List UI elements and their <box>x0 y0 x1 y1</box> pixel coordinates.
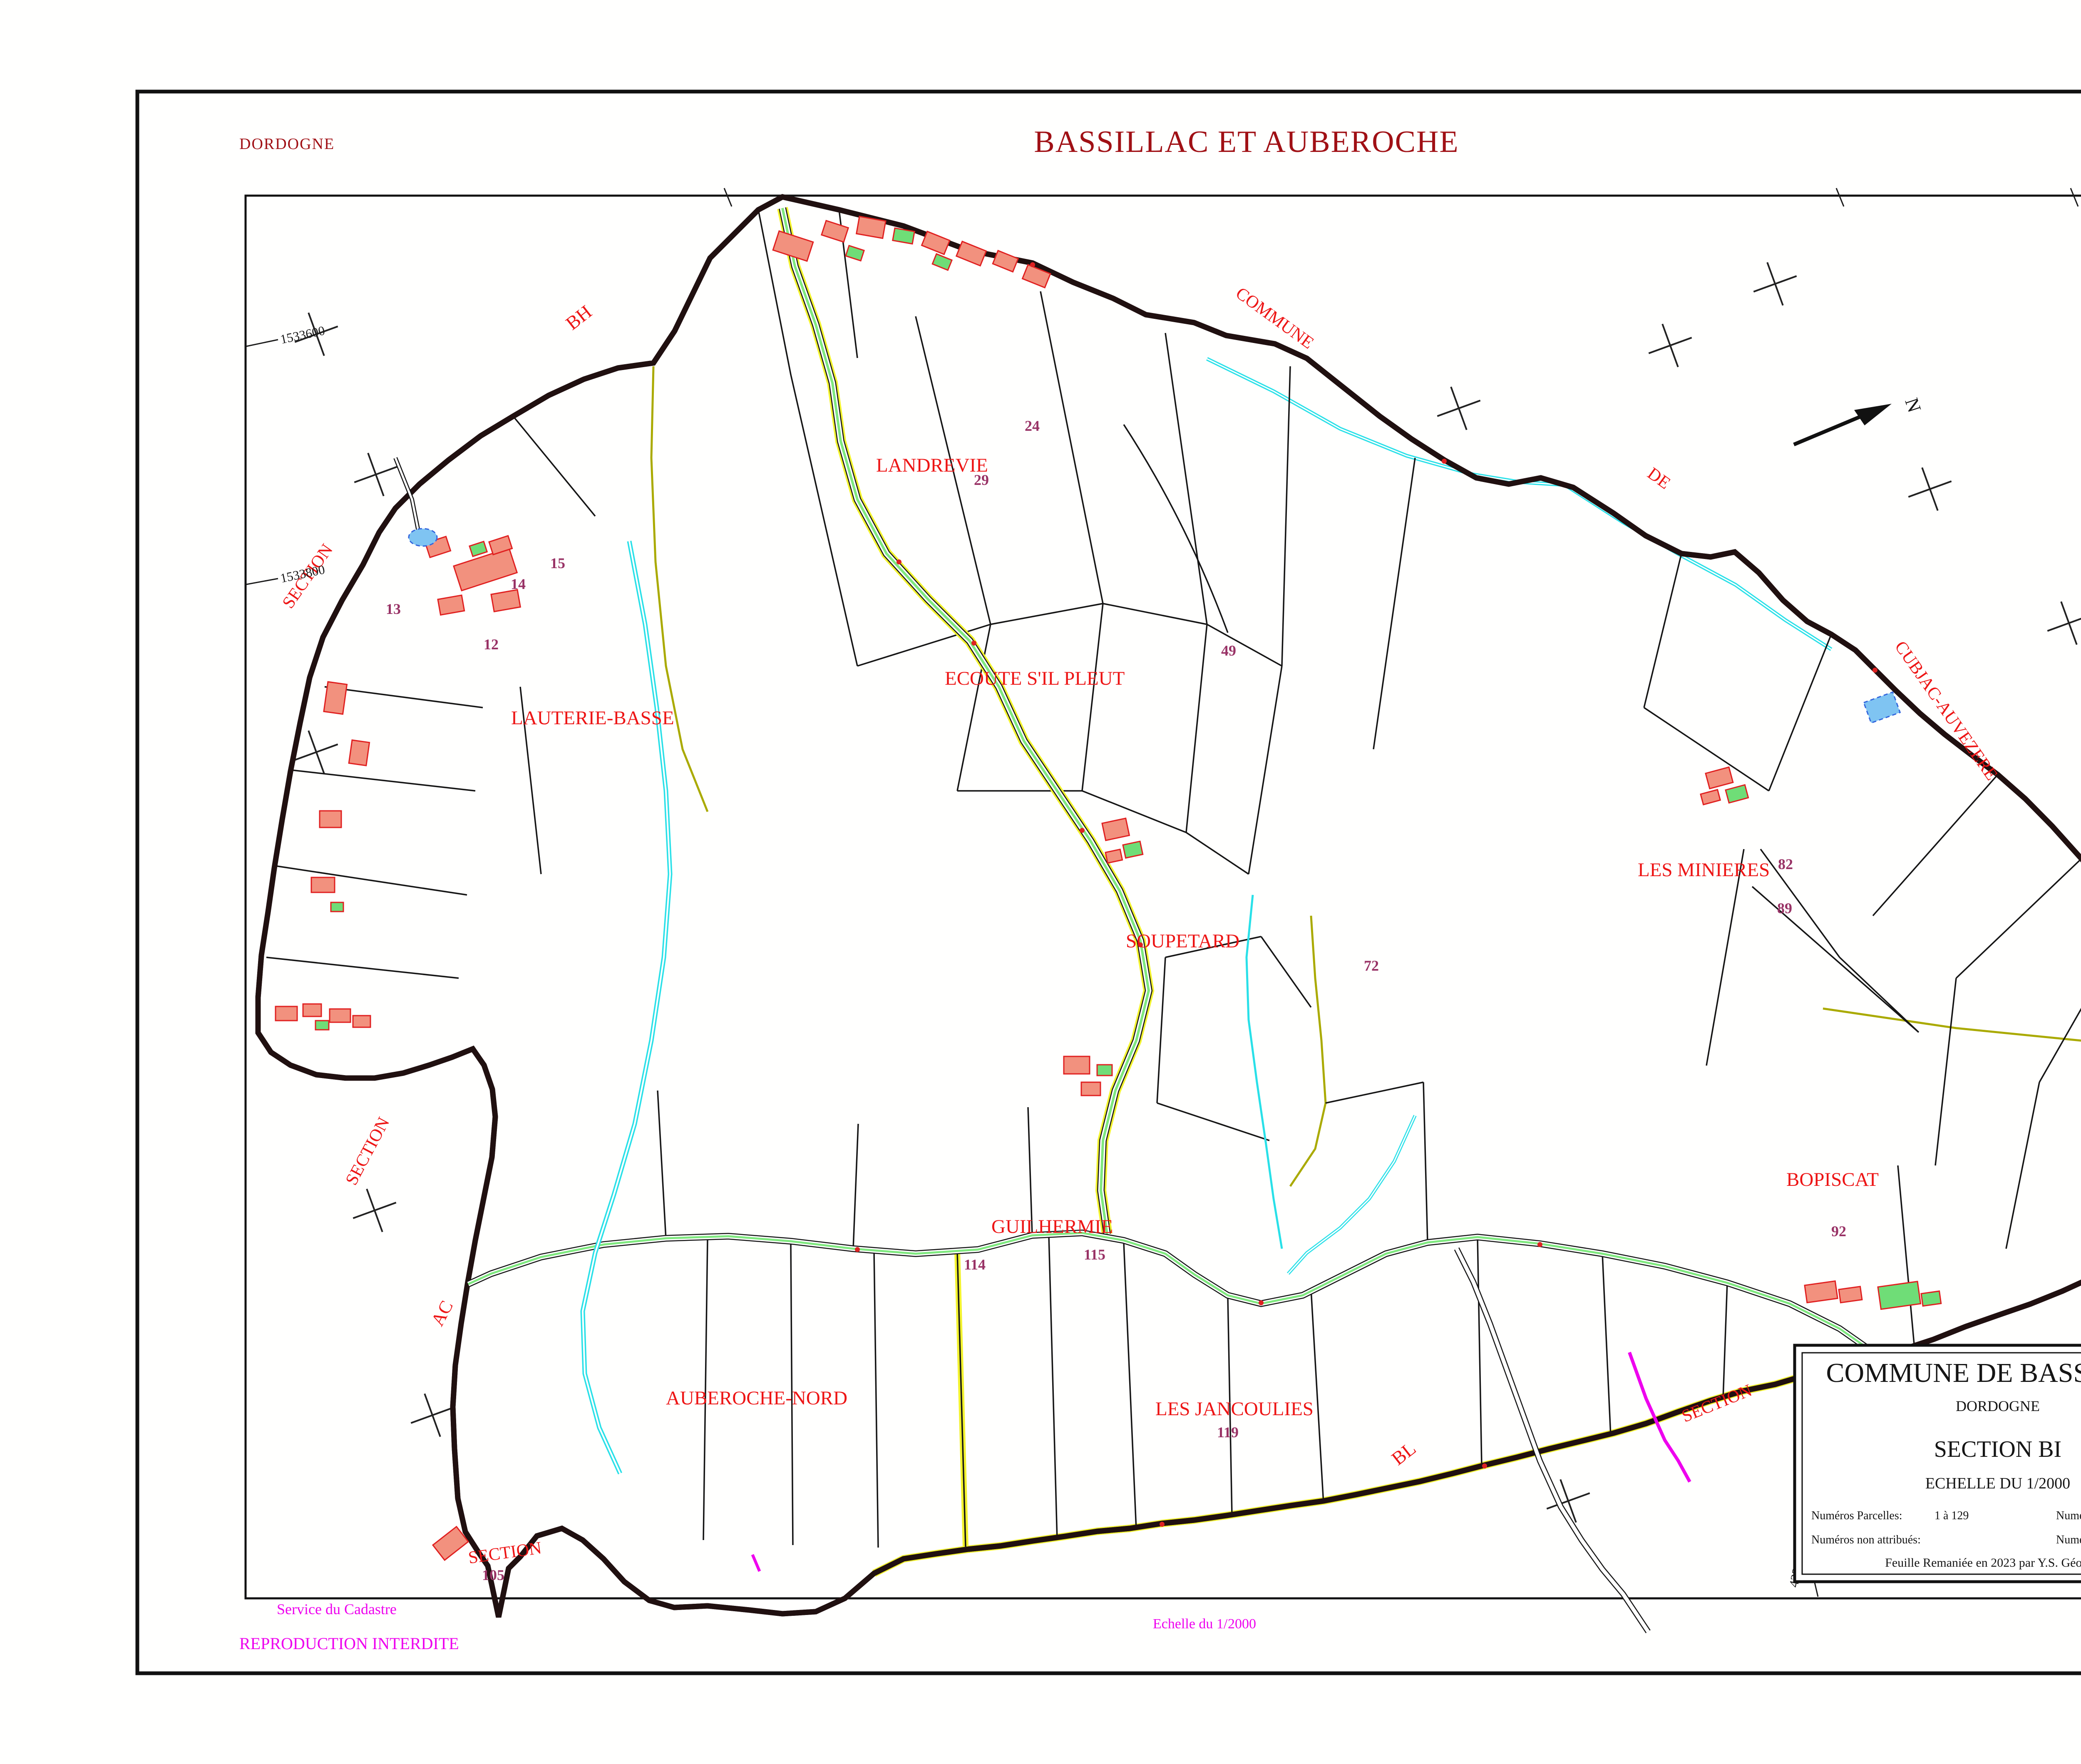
stream-northeast-gap <box>1207 359 1831 649</box>
road-guilhermie <box>468 1233 1881 1358</box>
label-section-bl: BL <box>1388 1438 1420 1469</box>
place-landrevie: LANDREVIE <box>876 455 988 476</box>
cartouche-unassigned-label: Numéros non attribués: <box>1811 1533 1921 1546</box>
road-southeast <box>1457 1249 1648 1632</box>
place-soupetard: SOUPETARD <box>1126 930 1239 952</box>
parcel-number: 92 <box>1831 1223 1846 1240</box>
magenta-lines <box>752 1352 1690 1571</box>
place-bopiscat: BOPISCAT <box>1786 1169 1879 1190</box>
cartouche-section: SECTION BI <box>1934 1436 2061 1462</box>
cadastral-sheet: DORDOGNE BASSILLAC ET AUBEROCHE SECTION … <box>0 0 2081 1764</box>
cartouche-note: Feuille Remaniée en 2023 par Y.S. Géomèt… <box>1885 1556 2081 1570</box>
label-cubjac-auvezere: CUBJAC-AUVEZERE <box>1891 638 2001 784</box>
place-guilhermie: GUILHERMIE <box>991 1216 1113 1237</box>
place-les-jancoulies: LES JANCOULIES <box>1155 1398 1314 1420</box>
cartouche-commune: COMMUNE DE BASSILLAC <box>1826 1358 2081 1388</box>
label-section-bh: BH <box>562 301 596 334</box>
edge-ticks-top <box>724 188 2078 206</box>
cartouche-intercalated-label: Numéros intercalés: <box>2056 1509 2081 1522</box>
label-de: DE <box>1644 464 1674 493</box>
olive-limits <box>651 366 2081 1186</box>
parcel-number: 119 <box>1217 1424 1239 1441</box>
cartouche-parcels-value: 1 à 129 <box>1934 1509 1969 1522</box>
parcel-number: 89 <box>1777 900 1792 917</box>
footer-scale-value: 2000 <box>1228 1616 1256 1632</box>
stream-northeast <box>1207 359 1831 649</box>
parcel-number: 14 <box>511 576 526 592</box>
label-section-bottom-right: SECTION <box>1679 1381 1755 1426</box>
parcel-number: 114 <box>964 1256 986 1273</box>
place-ecoute-sil-pleut: ECOUTE S'IL PLEUT <box>945 668 1125 689</box>
place-les-minieres: LES MINIERES <box>1638 859 1770 881</box>
label-section-ac: AC <box>427 1297 457 1329</box>
parcel-number: 105 <box>482 1567 504 1583</box>
cartouche-department: DORDOGNE <box>1956 1398 2040 1414</box>
parcel-number: 15 <box>550 555 565 571</box>
label-section-left-lower: SECTION <box>342 1114 394 1188</box>
footer-reproduction: REPRODUCTION INTERDITE <box>239 1634 459 1653</box>
parcel-number: 82 <box>1778 856 1793 872</box>
parcel-number: 115 <box>1084 1246 1105 1263</box>
place-auberoche-nord: AUBEROCHE-NORD <box>666 1387 847 1409</box>
parcel-number: 24 <box>1025 417 1040 434</box>
grid-crosses <box>287 255 2081 1530</box>
footer-scale-label: Echelle du 1/ <box>1153 1616 1228 1632</box>
cadastral-map-svg: DORDOGNE BASSILLAC ET AUBEROCHE SECTION … <box>0 0 2081 1764</box>
parcel-numbers: 12 13 14 15 24 29 49 72 82 89 92 105 114… <box>386 417 1846 1583</box>
cartouche-scale: ECHELLE DU 1/2000 <box>1925 1475 2070 1492</box>
cartouche-nfp-label: Numéros NFP: <box>2056 1533 2081 1546</box>
parcel-number: 72 <box>1364 957 1379 974</box>
north-arrow-head <box>1854 404 1892 425</box>
parcel-number: 13 <box>386 601 401 617</box>
header-department: DORDOGNE <box>239 135 335 153</box>
road-main-north <box>782 208 1149 1234</box>
north-arrow: N <box>1794 395 1925 445</box>
footer-service: Service du Cadastre <box>277 1601 397 1617</box>
parcel-number: 12 <box>484 636 499 653</box>
page-title: BASSILLAC ET AUBEROCHE <box>1034 125 1459 159</box>
cartouche: COMMUNE DE BASSILLAC DORDOGNE SECTION BI… <box>1795 1345 2081 1582</box>
place-lauterie-basse: LAUTERIE-BASSE <box>511 707 674 729</box>
parcel-number: 49 <box>1221 642 1236 659</box>
parcel-number: 29 <box>974 472 989 488</box>
north-label: N <box>1901 395 1925 415</box>
label-section-bottom-left: SECTION <box>467 1538 543 1568</box>
cartouche-parcels-label: Numéros Parcelles: <box>1811 1509 1902 1522</box>
boundary-stones <box>855 262 2081 1527</box>
